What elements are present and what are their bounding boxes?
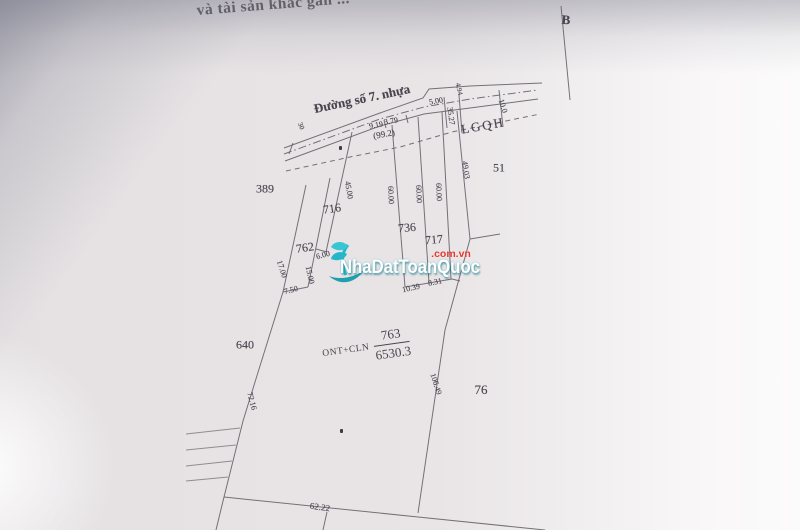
parcel-76: 76 — [475, 382, 488, 398]
direction-b: B — [561, 12, 571, 29]
dim-60-00-b: 60.00 — [414, 185, 424, 203]
parcel-762: 762 — [295, 239, 315, 256]
parcel-717: 717 — [424, 232, 443, 249]
cadastral-map-photo: và tài sản khác gắn ... — [0, 0, 800, 530]
adjacent-structure-lines — [186, 428, 240, 481]
survey-point-marker — [339, 146, 342, 150]
dim-60-00-c: 60.00 — [434, 183, 444, 201]
parcel-number-over-area: 763 6530.3 — [372, 324, 412, 364]
survey-point-marker — [340, 429, 343, 433]
parcel-736: 736 — [397, 220, 416, 237]
land-use-code: ONT+CLN — [322, 342, 370, 358]
parcel-51: 51 — [493, 161, 505, 176]
parcel-716: 716 — [322, 200, 342, 217]
parcel-389: 389 — [256, 182, 274, 197]
watermark-brand: NhaDatToanQuoc — [340, 257, 480, 279]
dim-60-00-a: 60.00 — [386, 186, 396, 204]
parcel-640: 640 — [236, 338, 254, 353]
